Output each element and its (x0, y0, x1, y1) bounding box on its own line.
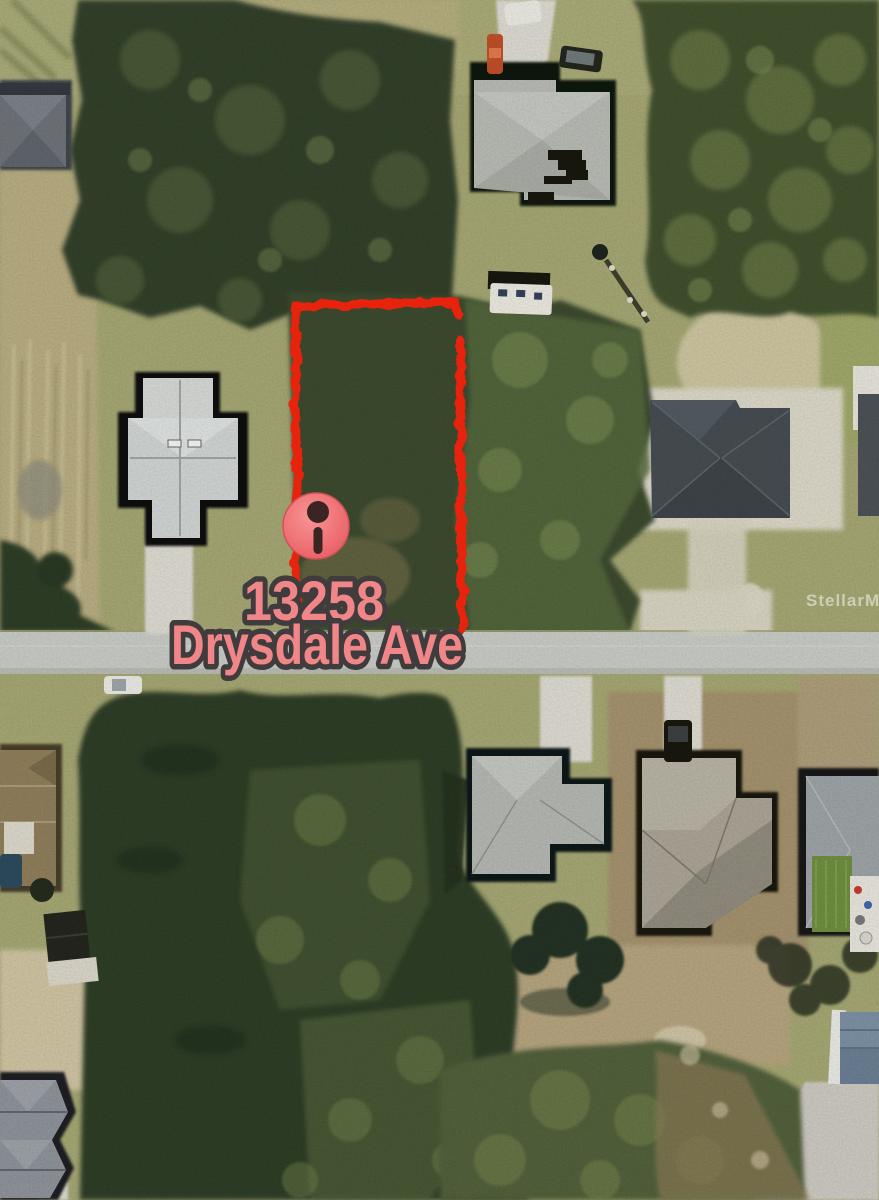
white-car-road (104, 676, 142, 694)
deck (4, 822, 34, 854)
house-left-edge (0, 744, 62, 902)
vegetation-top-left (62, 0, 458, 332)
house-top-left (0, 80, 72, 170)
watermark: StellarMLS (806, 591, 879, 610)
address-line-2: Drysdale Ave (171, 613, 463, 676)
building-blue-roof (828, 1010, 879, 1085)
lot-boundary-right (460, 340, 462, 630)
vegetation-top-right (632, 0, 879, 318)
house-mid-right (650, 400, 790, 518)
aerial-imagery (0, 0, 879, 1200)
pool (0, 854, 22, 888)
satellite-map: 13258 Drysdale Ave StellarMLS (0, 0, 879, 1200)
house-c (798, 768, 879, 952)
location-pin-icon (283, 493, 349, 559)
